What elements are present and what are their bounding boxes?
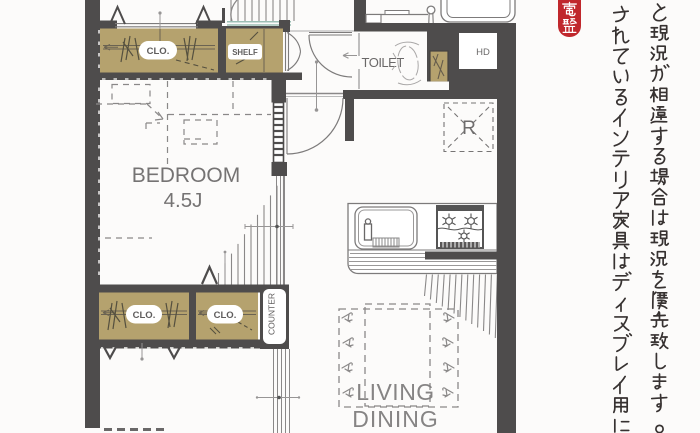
svg-text:CLO.: CLO. xyxy=(147,46,170,57)
svg-text:CLO.: CLO. xyxy=(214,310,237,321)
svg-text:COUNTER: COUNTER xyxy=(267,293,277,335)
svg-text:4.5J: 4.5J xyxy=(164,189,203,212)
svg-text:DINING: DINING xyxy=(352,406,439,432)
svg-text:CLO.: CLO. xyxy=(133,310,156,321)
svg-text:SHELF: SHELF xyxy=(232,48,258,57)
svg-text:R: R xyxy=(462,118,476,139)
svg-text:BEDROOM: BEDROOM xyxy=(132,164,241,187)
svg-text:HD: HD xyxy=(476,47,490,58)
svg-text:LIVING: LIVING xyxy=(356,379,434,405)
